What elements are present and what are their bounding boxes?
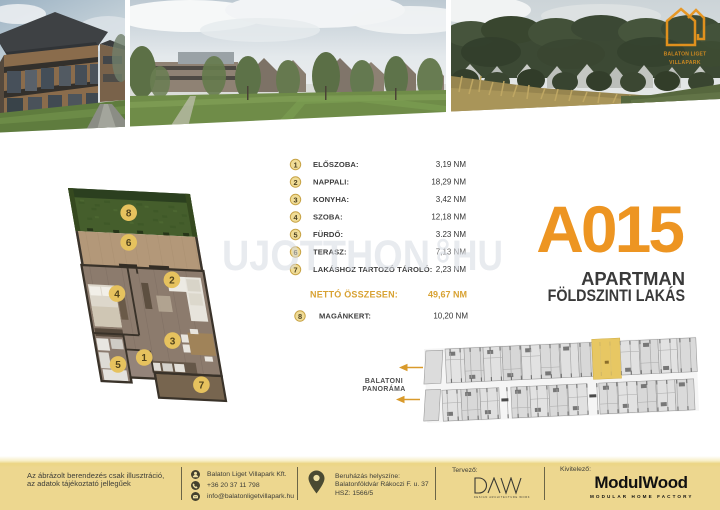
svg-text:8: 8 bbox=[298, 312, 302, 321]
svg-text:2: 2 bbox=[293, 178, 297, 187]
svg-text:3: 3 bbox=[170, 336, 176, 347]
svg-text:MAGÁNKERT:: MAGÁNKERT: bbox=[319, 312, 371, 321]
svg-text:8: 8 bbox=[126, 208, 132, 219]
svg-text:3,42 NM: 3,42 NM bbox=[436, 195, 467, 204]
svg-text:NAPPALI:: NAPPALI: bbox=[313, 178, 349, 187]
svg-text:HU: HU bbox=[452, 232, 503, 278]
svg-text:SZOBA:: SZOBA: bbox=[313, 213, 343, 222]
svg-text:ELŐSZOBA:: ELŐSZOBA: bbox=[313, 160, 359, 169]
svg-text:2: 2 bbox=[169, 276, 175, 287]
svg-text:DESIGN ARCHITECTURE WORK: DESIGN ARCHITECTURE WORK bbox=[474, 495, 530, 499]
svg-text:UJOTTHON: UJOTTHON bbox=[222, 232, 430, 278]
svg-text:3,19 NM: 3,19 NM bbox=[436, 160, 467, 169]
svg-text:5: 5 bbox=[115, 360, 121, 371]
svg-text:1: 1 bbox=[293, 160, 297, 169]
svg-text:BALATON LIGET: BALATON LIGET bbox=[664, 52, 707, 58]
svg-text:6: 6 bbox=[126, 238, 132, 249]
svg-text:12,18 NM: 12,18 NM bbox=[431, 213, 466, 222]
svg-text:4: 4 bbox=[114, 289, 120, 300]
svg-text:KONYHA:: KONYHA: bbox=[313, 195, 349, 204]
svg-text:3: 3 bbox=[293, 195, 297, 204]
svg-text:7: 7 bbox=[199, 380, 205, 391]
svg-text:NETTÓ ÖSSZESEN:: NETTÓ ÖSSZESEN: bbox=[310, 289, 398, 300]
svg-text:VILLAPARK: VILLAPARK bbox=[669, 60, 701, 66]
svg-text:10,20 NM: 10,20 NM bbox=[433, 312, 468, 321]
svg-text:49,67 NM: 49,67 NM bbox=[428, 290, 467, 300]
svg-text:18,29 NM: 18,29 NM bbox=[431, 178, 466, 187]
svg-text:1: 1 bbox=[141, 353, 147, 364]
